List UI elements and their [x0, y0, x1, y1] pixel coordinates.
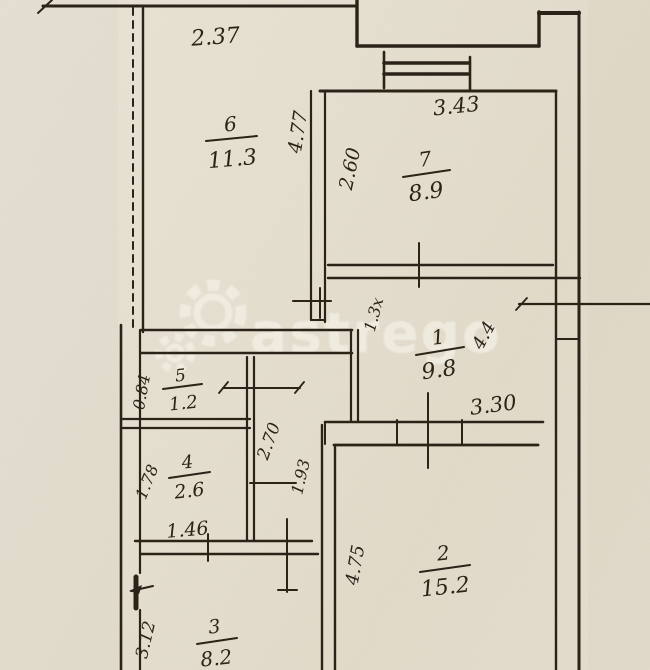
dim-room7-width: 3.43 — [432, 92, 481, 121]
room5-number: 5 — [174, 366, 187, 387]
room7-area: 8.9 — [407, 178, 445, 208]
room2-area: 15.2 — [420, 573, 471, 603]
room3-number: 3 — [207, 615, 221, 638]
room4-area: 2.6 — [172, 479, 205, 504]
floor-plan-document: astrego — [0, 0, 650, 670]
room3-area: 8.2 — [199, 644, 233, 670]
paper-left-margin — [0, 0, 118, 670]
room4-number: 4 — [180, 451, 195, 473]
room5-area: 1.2 — [168, 392, 199, 416]
dim-room6-width: 2.37 — [189, 23, 241, 51]
room6-area: 11.3 — [207, 145, 258, 174]
room2-number: 2 — [435, 540, 451, 565]
room6-number: 6 — [223, 111, 238, 136]
paper-right-margin — [588, 0, 650, 670]
floor-plan-drawing: astrego — [0, 0, 650, 670]
dim-room4-width: 1.46 — [165, 517, 209, 543]
room1-area: 9.8 — [420, 356, 458, 386]
